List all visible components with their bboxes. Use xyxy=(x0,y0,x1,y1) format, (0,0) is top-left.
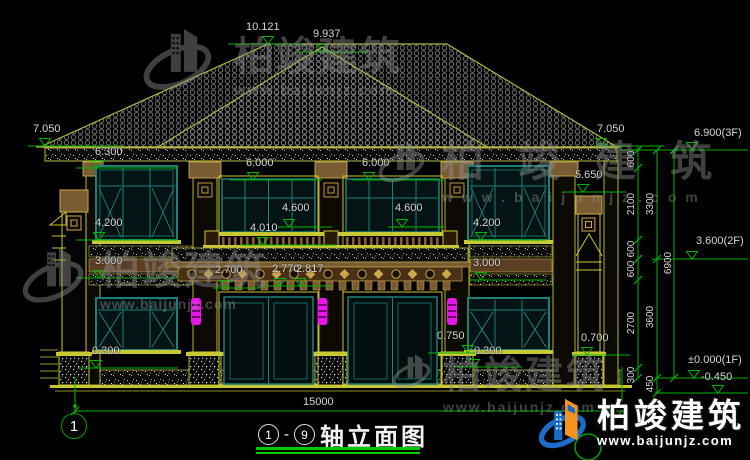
level-label-ridge2: 9.937 xyxy=(313,29,341,40)
vdim-2100: 2100 xyxy=(627,184,637,224)
brand-logo-text: 柏竣建筑 xyxy=(597,399,745,433)
left-chimney-stack xyxy=(40,190,92,385)
entry-doors-right xyxy=(343,292,442,384)
level-label-bay-roof: 5.650 xyxy=(575,170,603,181)
vdim-3600: 3600 xyxy=(646,297,656,337)
overall-width-label: 15000 xyxy=(303,397,334,408)
level-label-eave-left: 7.050 xyxy=(33,124,61,135)
title-axis-end-bubble: 9 xyxy=(294,424,315,445)
level-label-win-sill-r: 4.200 xyxy=(473,218,501,229)
vdim-600-a: 600 xyxy=(627,139,637,179)
hip-roof xyxy=(36,44,621,147)
level-label-door-top-b: 6.000 xyxy=(362,158,390,169)
baijun-logo-icon xyxy=(538,391,592,455)
title-underline-2 xyxy=(256,452,420,454)
level-label-band-l: 3.000 xyxy=(95,256,123,267)
entry-doors-left xyxy=(219,292,318,384)
eave-fascia-band xyxy=(45,148,617,161)
title-separator: - xyxy=(284,426,289,443)
vdim-600-c: 600 xyxy=(627,249,637,289)
level-label-railing: 4.010 xyxy=(250,223,278,234)
level-label-ground: -0.450 xyxy=(701,372,732,383)
title-axis-start-bubble: 1 xyxy=(258,424,279,445)
level-label-floor3: 6.900(3F) xyxy=(694,128,742,139)
level-label-porch-a: 2.700 xyxy=(215,265,243,276)
level-label-win-sill-l: 4.200 xyxy=(95,218,123,229)
axis-bubble-1-label: 1 xyxy=(70,418,78,435)
level-label-eave-right: 7.050 xyxy=(597,124,625,135)
title-underline-1 xyxy=(256,447,420,450)
vdim-6900: 6900 xyxy=(664,243,674,283)
cad-elevation-screenshot: 10.121 9.937 7.050 7.050 6.900(3F) 6.300… xyxy=(0,0,750,460)
brand-logo: 柏竣建筑 www.baijunjz.com xyxy=(538,391,745,455)
level-label-plinth-b: 0.700 xyxy=(581,333,609,344)
level-label-door-top-a: 6.000 xyxy=(246,158,274,169)
axis-bubble-1: 1 xyxy=(61,413,87,439)
vdim-3300: 3300 xyxy=(646,184,656,224)
level-label-base-l: 0.300 xyxy=(92,346,120,357)
right-bay-stack xyxy=(572,196,606,385)
level-label-floor2: 3.600(2F) xyxy=(696,236,744,247)
level-label-floor1: ±0.000(1F) xyxy=(688,355,742,366)
level-label-sill-b: 4.600 xyxy=(395,203,423,214)
window-2f-left xyxy=(92,166,181,244)
level-label-porch-c: 2.817 xyxy=(296,264,324,275)
balcony-doors-right xyxy=(343,176,442,234)
level-label-plinth-a: 0.750 xyxy=(437,331,465,342)
level-label-band-r: 3.000 xyxy=(473,258,501,269)
vdim-300: 300 xyxy=(627,355,637,395)
vdim-2700: 2700 xyxy=(627,303,637,343)
brand-logo-url: www.baijunjz.com xyxy=(597,433,745,448)
level-label-base-r: 0.300 xyxy=(474,346,502,357)
level-label-sill-a: 4.600 xyxy=(282,203,310,214)
level-label-ridge: 10.121 xyxy=(246,22,280,33)
level-label-win-top: 6.300 xyxy=(95,147,123,158)
